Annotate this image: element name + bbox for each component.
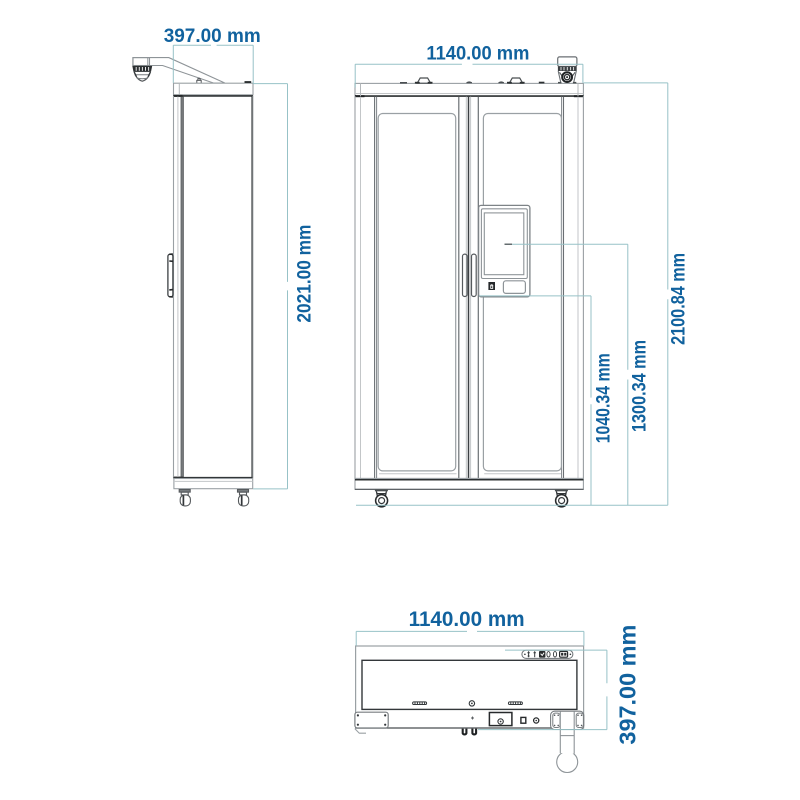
svg-text:1140.00 mm: 1140.00 mm [426,43,529,64]
svg-text:1140.00 mm: 1140.00 mm [409,608,525,631]
svg-text:1300.34 mm: 1300.34 mm [630,340,651,432]
svg-text:2021.00 mm: 2021.00 mm [295,225,316,323]
svg-text:397.00 mm: 397.00 mm [614,625,640,745]
svg-text:1040.34 mm: 1040.34 mm [594,353,615,443]
svg-text:2100.84 mm: 2100.84 mm [669,253,690,345]
svg-text:397.00 mm: 397.00 mm [164,26,261,47]
